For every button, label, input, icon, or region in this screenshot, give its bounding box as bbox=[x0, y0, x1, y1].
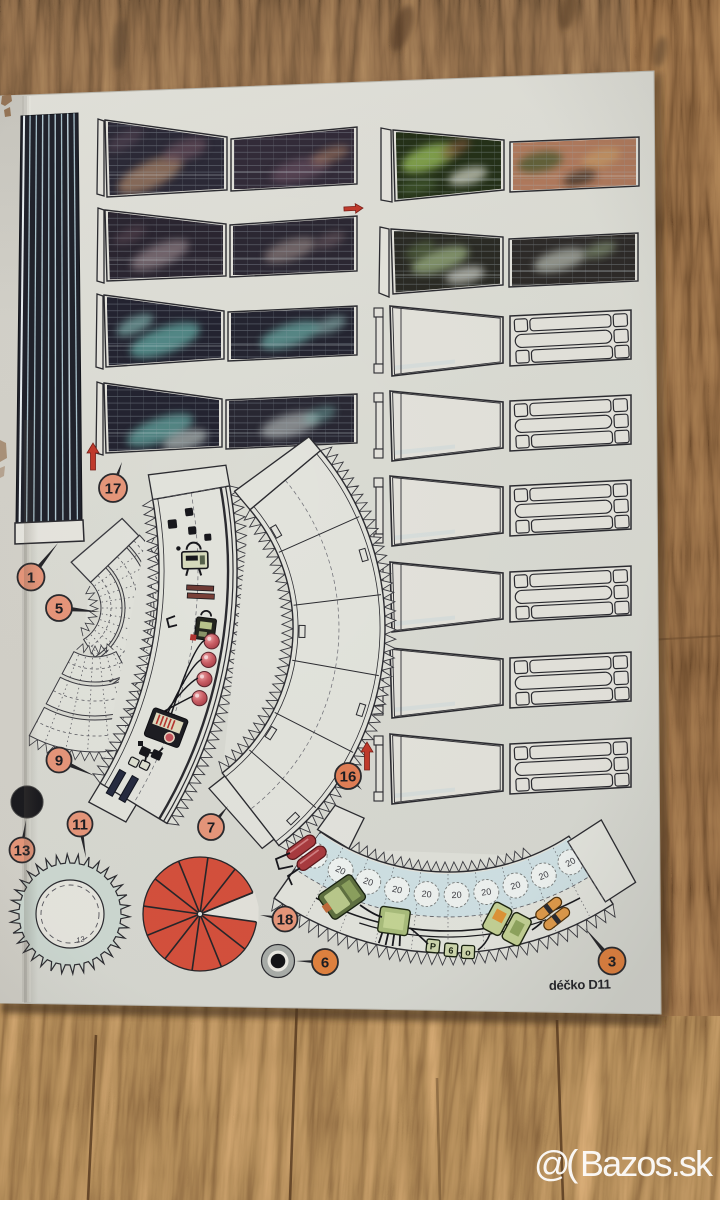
svg-text:Bazos.sk: Bazos.sk bbox=[580, 1143, 714, 1184]
svg-text:(: ( bbox=[566, 1143, 579, 1184]
